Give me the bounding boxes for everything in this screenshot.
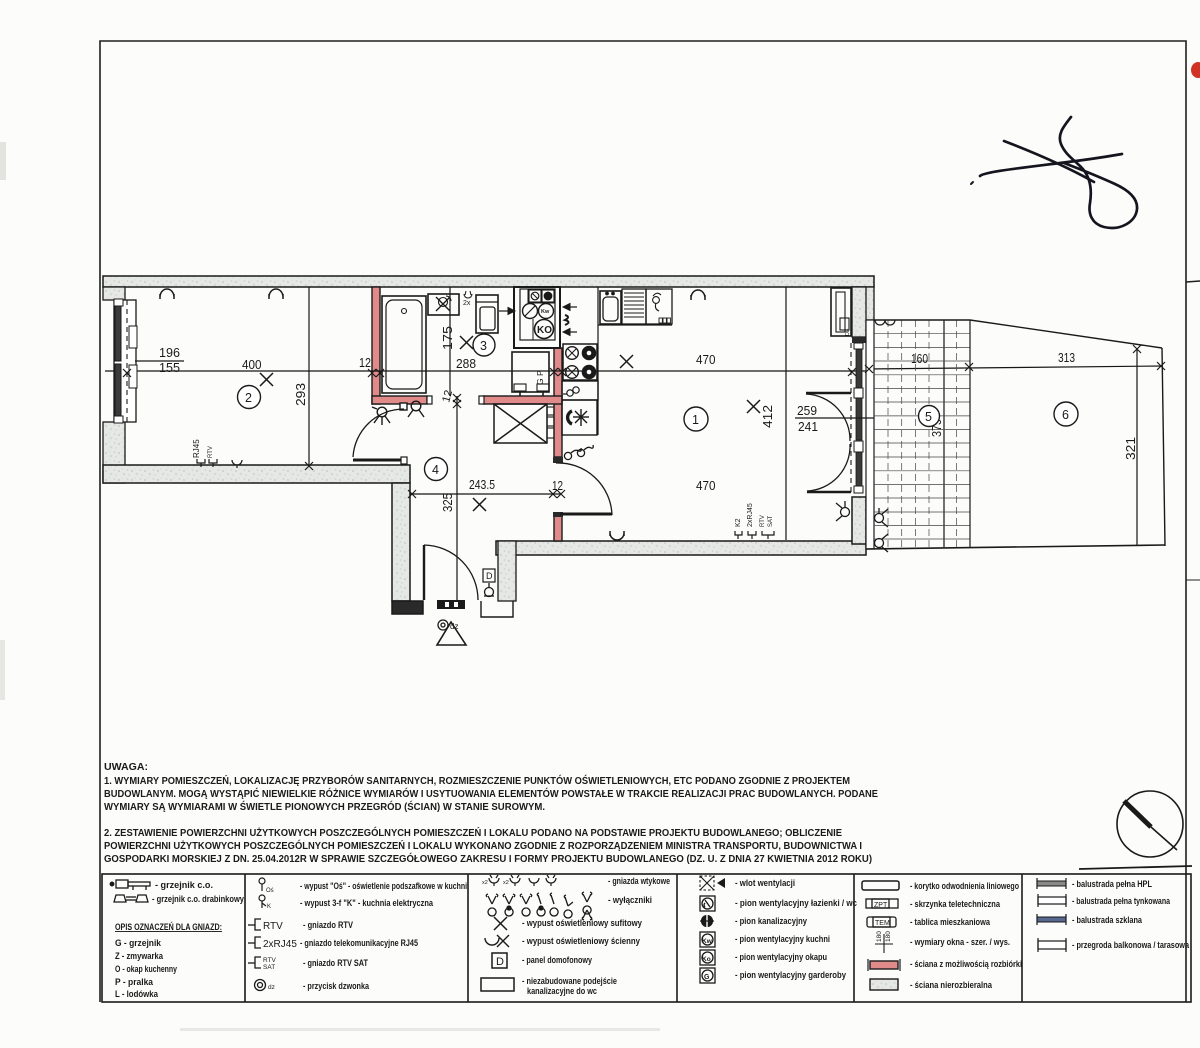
svg-text:- wymiary okna - szer. / wys.: - wymiary okna - szer. / wys. xyxy=(910,937,1010,947)
svg-text:RTV: RTV xyxy=(760,515,766,527)
svg-text:- pion wentylacyjny kuchni: - pion wentylacyjny kuchni xyxy=(735,934,830,944)
svg-text:155: 155 xyxy=(159,360,180,375)
svg-text:POWIERZCHNI UŻYTKOWYCH POSZCZE: POWIERZCHNI UŻYTKOWYCH POSZCZEGÓLNYCH PO… xyxy=(104,839,862,852)
svg-text:D: D xyxy=(486,571,493,581)
svg-text:6: 6 xyxy=(1062,408,1069,422)
svg-text:- wypust "Oś" - oświetlenie po: - wypust "Oś" - oświetlenie podszafkowe … xyxy=(300,881,467,891)
svg-text:G - grzejnik: G - grzejnik xyxy=(115,938,162,948)
svg-text:- ściana z możliwością rozbiór: - ściana z możliwością rozbiórki xyxy=(910,959,1022,969)
svg-text:UWAGA:: UWAGA: xyxy=(104,762,148,773)
svg-text:KO: KO xyxy=(537,325,552,336)
svg-text:12: 12 xyxy=(359,356,371,370)
svg-text:180: 180 xyxy=(885,931,892,942)
svg-text:WYMIARY SĄ WYMIARAMI W ŚWIETLE: WYMIARY SĄ WYMIARAMI W ŚWIETLE PIONOWYCH… xyxy=(104,800,545,813)
svg-text:2x: 2x xyxy=(463,300,471,307)
svg-text:160: 160 xyxy=(911,352,928,366)
svg-text:- gniazda wtykowe: - gniazda wtykowe xyxy=(608,876,670,886)
svg-text:288: 288 xyxy=(456,357,476,371)
svg-text:Kw: Kw xyxy=(702,938,713,945)
svg-text:175: 175 xyxy=(441,326,455,350)
svg-text:400: 400 xyxy=(242,358,262,372)
svg-text:DE: DE xyxy=(845,328,851,336)
svg-text:3: 3 xyxy=(480,339,487,353)
svg-text:Kw: Kw xyxy=(541,309,550,315)
svg-text:- przegroda balkonowa / taraso: - przegroda balkonowa / tarasowa xyxy=(1072,940,1190,950)
svg-text:- ściana nierozbieralna: - ściana nierozbieralna xyxy=(910,980,993,990)
svg-text:- przycisk dzwonka: - przycisk dzwonka xyxy=(303,981,370,991)
svg-text:K: K xyxy=(267,904,271,910)
svg-text:kanalizacyjne do wc: kanalizacyjne do wc xyxy=(527,986,597,996)
svg-text:180: 180 xyxy=(876,931,883,942)
svg-text:D: D xyxy=(496,956,504,968)
svg-text:2: 2 xyxy=(245,391,252,405)
svg-text:OPIS OZNACZEŃ DLA GNIAZD:: OPIS OZNACZEŃ DLA GNIAZD: xyxy=(115,922,222,932)
svg-text:- korytko odwodnienia linioweg: - korytko odwodnienia liniowego xyxy=(910,881,1019,891)
svg-text:241: 241 xyxy=(798,419,818,434)
svg-text:293: 293 xyxy=(294,383,308,406)
svg-text:dz: dz xyxy=(268,984,275,991)
svg-text:- gniazdo RTV SAT: - gniazdo RTV SAT xyxy=(303,958,368,968)
svg-text:RJ45: RJ45 xyxy=(192,439,201,458)
svg-text:2. ZESTAWIENIE POWIERZCHNI UŻY: 2. ZESTAWIENIE POWIERZCHNI UŻYTKOWYCH PO… xyxy=(104,826,842,839)
svg-text:- balustrada pełna HPL: - balustrada pełna HPL xyxy=(1072,879,1152,889)
svg-text:K2: K2 xyxy=(735,518,742,527)
svg-text:- skrzynka teletechniczna: - skrzynka teletechniczna xyxy=(910,899,1001,909)
svg-text:- grzejnik c.o. drabinkowy: - grzejnik c.o. drabinkowy xyxy=(152,894,245,904)
svg-text:- gniazdo RTV: - gniazdo RTV xyxy=(303,920,354,930)
svg-text:Oś: Oś xyxy=(266,888,274,894)
svg-text:12: 12 xyxy=(552,479,563,493)
svg-text:196: 196 xyxy=(159,345,180,360)
svg-text:- wypust oświetleniowy ścienny: - wypust oświetleniowy ścienny xyxy=(522,936,641,946)
svg-text:- pion wentylacyjny okapu: - pion wentylacyjny okapu xyxy=(735,952,827,962)
svg-text:259: 259 xyxy=(797,403,817,418)
svg-text:Z - zmywarka: Z - zmywarka xyxy=(115,951,164,961)
svg-text:RTV: RTV xyxy=(208,446,214,458)
svg-text:Ko: Ko xyxy=(702,956,711,963)
svg-text:2xRJ45: 2xRJ45 xyxy=(747,503,754,527)
svg-text:470: 470 xyxy=(696,479,716,493)
svg-text:O - okap kuchenny: O - okap kuchenny xyxy=(115,964,178,974)
svg-text:- pion wentylacyjny garderoby: - pion wentylacyjny garderoby xyxy=(735,970,847,980)
svg-text:1: 1 xyxy=(692,413,699,427)
svg-text:G P: G P xyxy=(535,370,545,385)
svg-text:TEM: TEM xyxy=(875,920,890,927)
svg-text:- wypust oświetleniowy sufitow: - wypust oświetleniowy sufitowy xyxy=(522,918,643,928)
svg-text:P - pralka: P - pralka xyxy=(115,977,154,987)
svg-text:- wyłączniki: - wyłączniki xyxy=(608,895,652,905)
svg-text:x2: x2 xyxy=(482,880,488,886)
svg-text:321: 321 xyxy=(1124,437,1138,460)
svg-text:- tablica mieszkaniowa: - tablica mieszkaniowa xyxy=(910,917,991,927)
svg-text:412: 412 xyxy=(761,405,775,428)
svg-text:243.5: 243.5 xyxy=(469,478,495,492)
svg-text:SAT: SAT xyxy=(768,515,774,527)
svg-text:313: 313 xyxy=(1058,351,1075,365)
svg-text:- gniazdo telekomunikacyjne RJ: - gniazdo telekomunikacyjne RJ45 xyxy=(300,938,418,948)
svg-text:- wypust 3-f "K" - kuchnia ele: - wypust 3-f "K" - kuchnia elektryczna xyxy=(300,898,434,908)
svg-text:- balustrada szklana: - balustrada szklana xyxy=(1072,915,1143,925)
svg-text:- wlot wentylacji: - wlot wentylacji xyxy=(735,878,795,888)
svg-text:BUDOWLANYM. MOGĄ WYSTĄPIĆ NIEW: BUDOWLANYM. MOGĄ WYSTĄPIĆ NIEWIELKIE RÓŻ… xyxy=(104,787,878,800)
svg-text:- pion wentylacyjny łazienki: - pion wentylacyjny łazienki / wc xyxy=(735,898,857,908)
svg-text:5: 5 xyxy=(925,410,932,424)
svg-text:ZPT: ZPT xyxy=(874,902,888,909)
svg-text:- pion kanalizacyjny: - pion kanalizacyjny xyxy=(735,916,808,926)
svg-text:L - lodówka: L - lodówka xyxy=(115,989,159,999)
svg-text:- niezabudowane podejście: - niezabudowane podejście xyxy=(522,976,617,986)
svg-text:- balustrada pełna tynkowana: - balustrada pełna tynkowana xyxy=(1072,896,1171,906)
svg-text:RTV: RTV xyxy=(263,921,283,932)
svg-text:470: 470 xyxy=(696,353,716,367)
svg-text:x2: x2 xyxy=(503,880,509,886)
svg-text:2xRJ45: 2xRJ45 xyxy=(263,939,297,950)
svg-text:GOSPODARKI MORSKIEJ Z DN. 25.0: GOSPODARKI MORSKIEJ Z DN. 25.04.2012R W … xyxy=(104,852,872,865)
svg-text:- panel domofonowy: - panel domofonowy xyxy=(522,955,593,965)
svg-text:- grzejnik c.o.: - grzejnik c.o. xyxy=(155,880,213,890)
svg-text:1. WYMIARY POMIESZCZEŃ, LOKALI: 1. WYMIARY POMIESZCZEŃ, LOKALIZACJĘ PRZY… xyxy=(104,774,850,787)
svg-text:G: G xyxy=(704,974,710,981)
svg-text:4: 4 xyxy=(432,463,439,477)
svg-text:SAT: SAT xyxy=(263,964,275,971)
svg-text:325: 325 xyxy=(441,493,455,512)
svg-text:RTV: RTV xyxy=(263,957,277,964)
